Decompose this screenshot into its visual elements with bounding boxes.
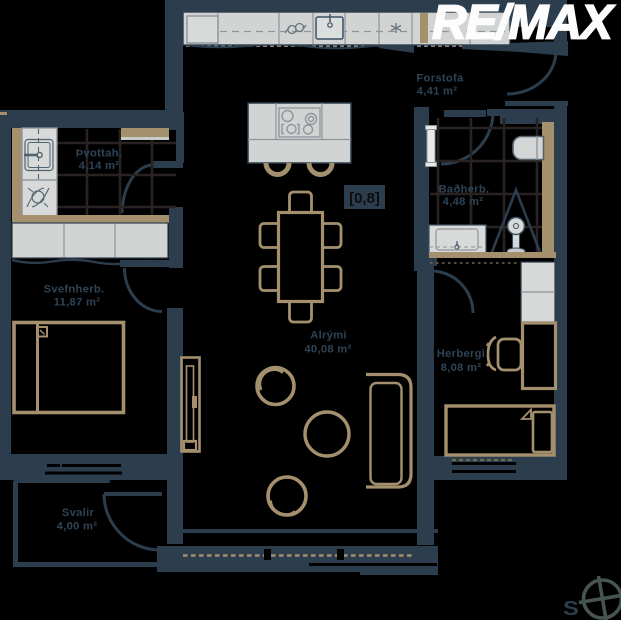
svg-text:S: S bbox=[563, 597, 579, 620]
svg-text:Alrými: Alrými bbox=[310, 330, 347, 342]
svg-text:Baðherb.: Baðherb. bbox=[439, 184, 490, 196]
svg-text:4,41 m²: 4,41 m² bbox=[417, 86, 458, 98]
svg-text:Herbergi: Herbergi bbox=[437, 348, 485, 360]
svg-text:Þvottah.: Þvottah. bbox=[76, 148, 123, 160]
svg-text:4,48 m²: 4,48 m² bbox=[443, 196, 484, 208]
svg-text:40,08 m²: 40,08 m² bbox=[304, 344, 351, 356]
svg-text:8,08 m²: 8,08 m² bbox=[441, 362, 482, 374]
svg-text:4,14 m²: 4,14 m² bbox=[79, 160, 120, 172]
svg-text:4,00 m²: 4,00 m² bbox=[57, 521, 98, 533]
svg-text:RE/MAX: RE/MAX bbox=[432, 0, 616, 50]
svg-text:Forstofa: Forstofa bbox=[416, 73, 464, 85]
svg-text:[0,8]: [0,8] bbox=[349, 190, 380, 207]
svg-text:11,87 m²: 11,87 m² bbox=[54, 297, 101, 309]
svg-text:Svalir: Svalir bbox=[62, 507, 95, 519]
svg-text:Svefnherb.: Svefnherb. bbox=[44, 284, 105, 296]
